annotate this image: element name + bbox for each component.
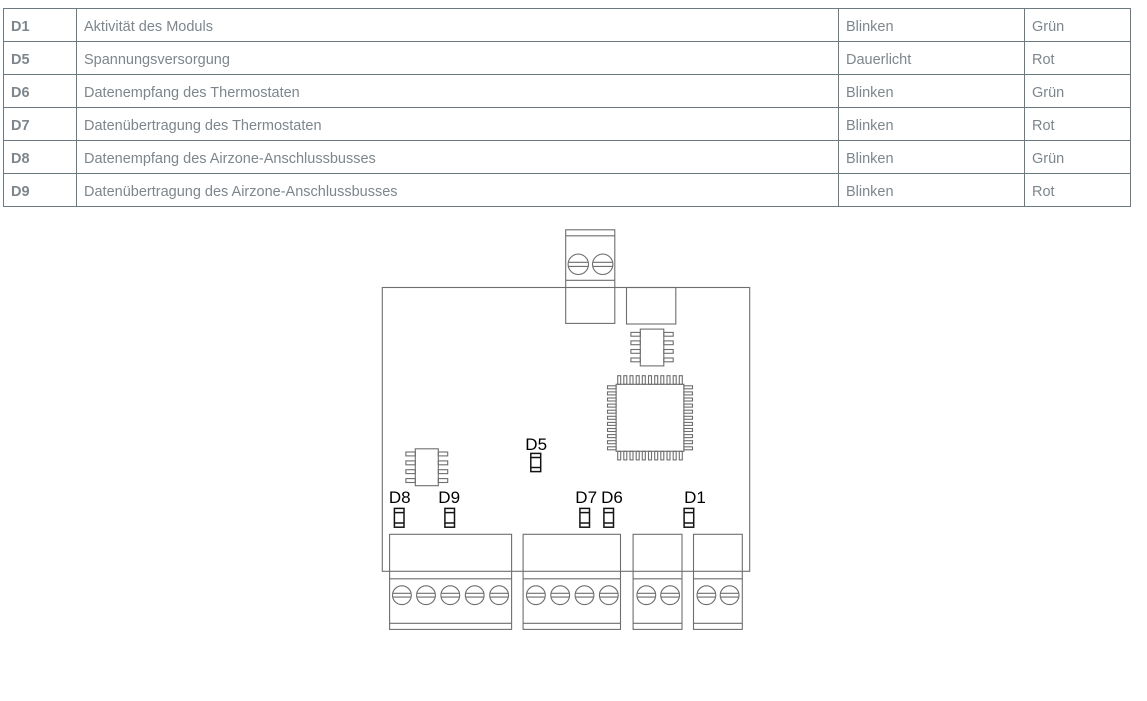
svg-text:D7: D7 (575, 488, 597, 507)
svg-text:D5: D5 (525, 435, 547, 454)
svg-text:D6: D6 (601, 488, 623, 507)
svg-text:D1: D1 (684, 488, 706, 507)
svg-text:D8: D8 (389, 488, 411, 507)
svg-text:D9: D9 (438, 488, 460, 507)
